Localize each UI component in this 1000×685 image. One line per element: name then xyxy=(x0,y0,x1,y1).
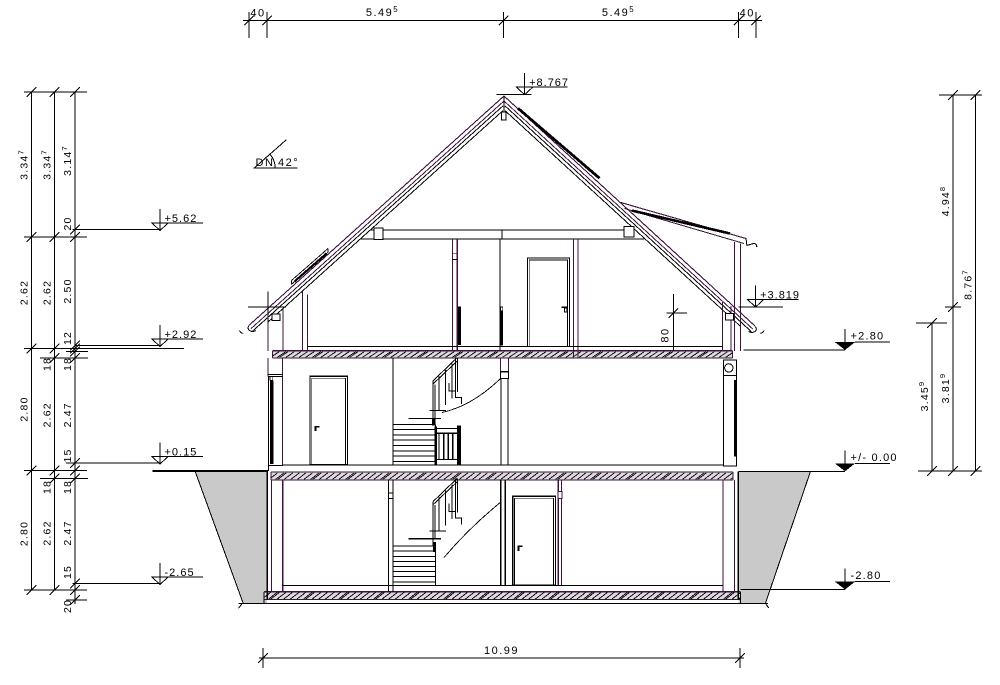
svg-text:+0.15: +0.15 xyxy=(165,446,198,458)
svg-text:15: 15 xyxy=(62,448,74,462)
svg-text:+5.62: +5.62 xyxy=(165,213,198,225)
svg-text:+2.80: +2.80 xyxy=(851,331,885,343)
svg-text:18: 18 xyxy=(62,357,74,371)
svg-text:+8.767: +8.767 xyxy=(529,77,569,89)
svg-text:42°: 42° xyxy=(278,157,299,169)
svg-text:80: 80 xyxy=(660,327,672,342)
svg-text:40: 40 xyxy=(740,8,755,20)
svg-text:2.80: 2.80 xyxy=(19,521,31,546)
svg-text:-2.65: -2.65 xyxy=(165,567,195,579)
svg-text:2.62: 2.62 xyxy=(19,280,31,305)
svg-text:2.80: 2.80 xyxy=(19,396,31,421)
svg-text:20: 20 xyxy=(62,216,74,230)
svg-text:40: 40 xyxy=(250,8,265,20)
svg-text:2.62: 2.62 xyxy=(42,280,54,305)
svg-text:10.99: 10.99 xyxy=(484,645,519,657)
svg-text:+3.819: +3.819 xyxy=(760,289,800,301)
svg-text:2.50: 2.50 xyxy=(62,278,74,303)
svg-text:12: 12 xyxy=(62,331,74,345)
svg-text:18: 18 xyxy=(42,480,54,494)
svg-text:2.47: 2.47 xyxy=(62,520,74,545)
svg-text:+/- 0.00: +/- 0.00 xyxy=(851,452,898,464)
svg-text:18: 18 xyxy=(62,480,74,494)
svg-text:2.62: 2.62 xyxy=(42,520,54,545)
svg-text:20: 20 xyxy=(62,599,74,613)
svg-text:-2.80: -2.80 xyxy=(851,570,882,582)
svg-text:2.47: 2.47 xyxy=(62,402,74,427)
svg-text:18: 18 xyxy=(42,357,54,371)
svg-text:15: 15 xyxy=(62,565,74,579)
svg-text:DN: DN xyxy=(256,157,275,169)
svg-text:+2.92: +2.92 xyxy=(165,329,198,341)
svg-text:2.62: 2.62 xyxy=(42,402,54,427)
